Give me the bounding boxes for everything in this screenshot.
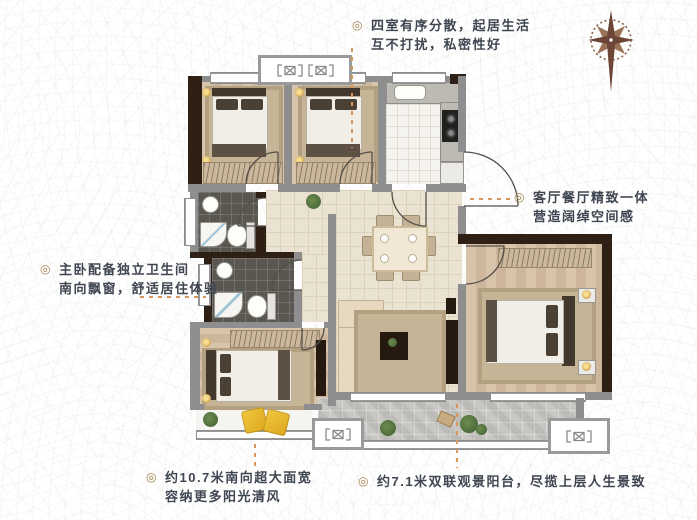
leader-line-bottom-right bbox=[456, 404, 458, 468]
leader-line-left bbox=[140, 296, 206, 298]
compass-rose-icon bbox=[580, 6, 642, 96]
bullet-icon: ◎ bbox=[358, 472, 370, 491]
leader-line-top bbox=[351, 48, 353, 148]
bullet-icon: ◎ bbox=[40, 260, 52, 298]
annotation-text: 四室有序分散，起居生活 互不打扰，私密性好 bbox=[371, 16, 531, 54]
floor-plan-page: ◎ 四室有序分散，起居生活 互不打扰，私密性好 ◎ 客厅餐厅精致一体 营造阔绰空… bbox=[0, 0, 697, 520]
annotation-text: 主卧配备独立卫生间 南向飘窗，舒适居住体验 bbox=[59, 260, 219, 298]
bullet-icon: ◎ bbox=[146, 468, 158, 506]
leader-line-bottom-left bbox=[254, 444, 256, 468]
annotation-left: ◎ 主卧配备独立卫生间 南向飘窗，舒适居住体验 bbox=[40, 260, 219, 298]
bullet-icon: ◎ bbox=[352, 16, 364, 54]
annotation-text: 约10.7米南向超大面宽 容纳更多阳光清风 bbox=[165, 468, 312, 506]
bullet-icon: ◎ bbox=[514, 188, 526, 226]
annotation-text: 客厅餐厅精致一体 营造阔绰空间感 bbox=[533, 188, 649, 226]
annotation-bottom-left: ◎ 约10.7米南向超大面宽 容纳更多阳光清风 bbox=[146, 468, 312, 506]
leader-line-right bbox=[470, 198, 510, 200]
annotation-top: ◎ 四室有序分散，起居生活 互不打扰，私密性好 bbox=[352, 16, 531, 54]
annotation-right: ◎ 客厅餐厅精致一体 营造阔绰空间感 bbox=[514, 188, 649, 226]
annotation-text: 约7.1米双联观景阳台，尽揽上层人生景致 bbox=[377, 472, 646, 491]
annotation-bottom-right: ◎ 约7.1米双联观景阳台，尽揽上层人生景致 bbox=[358, 472, 646, 491]
